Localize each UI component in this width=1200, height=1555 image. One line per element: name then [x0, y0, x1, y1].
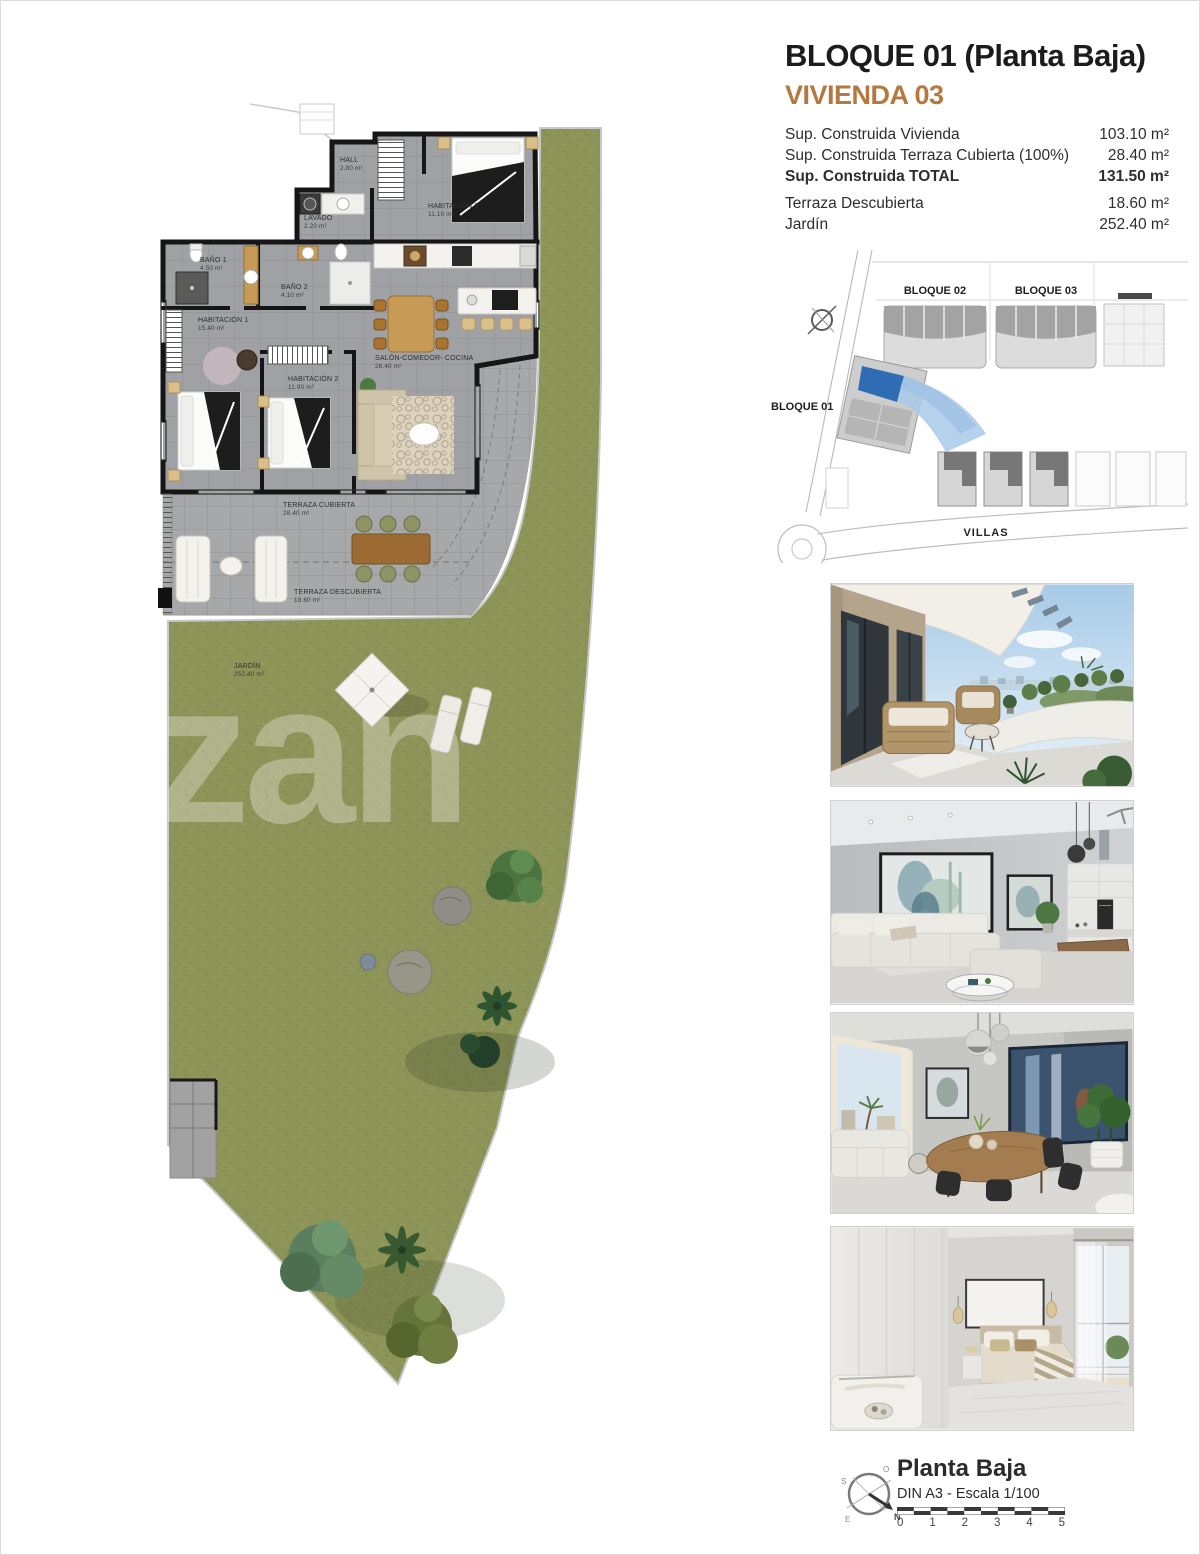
- row-label: Jardín: [785, 214, 828, 235]
- table-row: Terraza Descubierta18.60 m²: [785, 193, 1169, 214]
- footer-block: Planta Baja DIN A3 - Escala 1/100 0 1 2 …: [897, 1455, 1065, 1529]
- site-label-bloque01: BLOQUE 01: [771, 401, 833, 413]
- kitchen-back: [1067, 864, 1133, 951]
- site-plan: BLOQUE 02 BLOQUE 03 BLOQUE 01 VILLAS: [770, 248, 1190, 563]
- tick: 3: [994, 1517, 1000, 1529]
- plant: [1036, 902, 1060, 926]
- scale-bar: [897, 1507, 1065, 1515]
- tick: 2: [962, 1517, 968, 1529]
- tick: 4: [1026, 1517, 1032, 1529]
- page-subtitle: VIVIENDA 03: [785, 80, 944, 111]
- tick: 0: [897, 1517, 903, 1529]
- bedroom2-furniture: [258, 346, 330, 469]
- row-label: Sup. Construida Vivienda: [785, 124, 960, 145]
- paved-patch: [170, 1080, 216, 1178]
- site-label-villas: VILLAS: [963, 527, 1008, 539]
- row-value: 18.60 m²: [1108, 193, 1169, 214]
- row-value: 252.40 m²: [1099, 214, 1169, 235]
- table-row: Sup. Construida Vivienda103.10 m²: [785, 124, 1169, 145]
- tick: 5: [1059, 1517, 1065, 1529]
- plan-name: Planta Baja: [897, 1455, 1065, 1483]
- laundry-furniture: [300, 194, 364, 214]
- row-value: 28.40 m²: [1108, 145, 1169, 166]
- photo-living-room: [830, 800, 1134, 1005]
- site-block-far: [1104, 293, 1164, 366]
- dark-bush: [460, 1034, 480, 1054]
- tick: 1: [929, 1517, 935, 1529]
- page-title: BLOQUE 01 (Planta Baja): [785, 38, 1146, 74]
- table-row: Sup. Construida Terraza Cubierta (100%)2…: [785, 145, 1169, 166]
- table-row: Jardín252.40 m²: [785, 214, 1169, 235]
- entrance-walkway: [250, 104, 334, 140]
- row-value: 131.50 m²: [1098, 166, 1169, 187]
- dining-furniture: [374, 296, 448, 352]
- compass-icon: O S E N: [833, 1458, 905, 1530]
- compass-o: O: [883, 1465, 889, 1474]
- row-label: Sup. Construida TOTAL: [785, 166, 959, 187]
- palm-tree: [477, 986, 517, 1026]
- row-label: Sup. Construida Terraza Cubierta (100%): [785, 145, 1069, 166]
- watermark-text: zan: [150, 642, 465, 865]
- sheet-page: zan: [0, 0, 1200, 1555]
- site-block-01: [837, 356, 986, 454]
- palm-tree: [378, 1226, 426, 1274]
- site-label-bloque03: BLOQUE 03: [1015, 285, 1077, 297]
- compass-e: E: [845, 1515, 850, 1524]
- room-label-jardin: JARDÍN252.40 m²: [234, 661, 264, 678]
- lounge-chair: [831, 1375, 922, 1429]
- site-villas: [826, 452, 1186, 508]
- site-block-02: [884, 306, 986, 368]
- photo-dining-room: [830, 1012, 1134, 1214]
- compass-s: S: [841, 1477, 846, 1486]
- site-block-03: [996, 306, 1096, 368]
- row-label: Terraza Descubierta: [785, 193, 924, 214]
- floor-plan: zan: [140, 90, 645, 1410]
- photo-bedroom: [830, 1226, 1134, 1431]
- surface-table: Sup. Construida Vivienda103.10 m² Sup. C…: [785, 124, 1169, 235]
- site-compass-icon: [808, 306, 836, 334]
- site-label-bloque02: BLOQUE 02: [904, 285, 966, 297]
- scale-ticks: 0 1 2 3 4 5: [897, 1517, 1065, 1529]
- scale-text: DIN A3 - Escala 1/100: [897, 1486, 1065, 1502]
- photo-terrace: [830, 583, 1134, 787]
- row-value: 103.10 m²: [1099, 124, 1169, 145]
- table-row-total: Sup. Construida TOTAL131.50 m²: [785, 166, 1169, 187]
